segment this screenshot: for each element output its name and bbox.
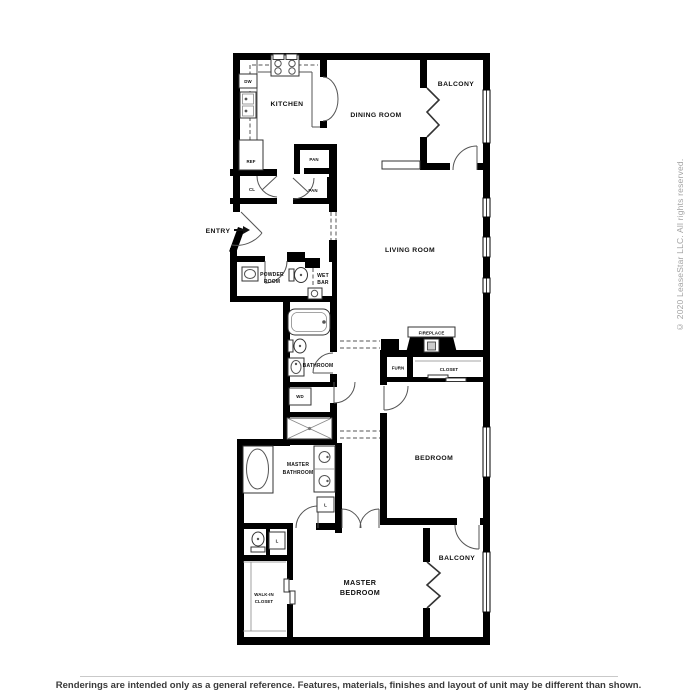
window-balcony-top <box>483 90 490 143</box>
label-powder-2: ROOM <box>264 279 280 285</box>
bathroom-sink <box>288 358 304 376</box>
label-kitchen: KITCHEN <box>270 101 303 108</box>
label-bathroom: BATHROOM <box>303 363 334 369</box>
floorplan-drawing: KITCHEN DINING ROOM BALCONY LIVING ROOM … <box>0 0 697 697</box>
label-balcony-bottom: BALCONY <box>439 555 475 562</box>
wd-door <box>334 382 355 403</box>
master-french-doors <box>342 509 379 528</box>
label-wic-1: WALK-IN <box>254 592 273 597</box>
floorplan-page: KITCHEN DINING ROOM BALCONY LIVING ROOM … <box>0 0 697 697</box>
balcony-top-door <box>453 146 477 170</box>
wc-toilet <box>251 532 265 552</box>
label-ref: REF <box>246 159 255 164</box>
plant-ledge <box>382 161 420 169</box>
cl-door <box>257 176 277 197</box>
label-wetbar-2: BAR <box>317 280 329 286</box>
label-master-bed-1: MASTER <box>344 578 377 587</box>
label-master-bath-1: MASTER <box>287 462 310 468</box>
window-bedroom <box>483 427 490 477</box>
label-pan-upper: PAN <box>309 157 318 162</box>
label-cl: CL <box>249 187 255 192</box>
kitchen-door <box>323 77 338 121</box>
window-balcony-bottom <box>483 552 490 612</box>
label-bedroom: BEDROOM <box>415 455 453 462</box>
window-living-2 <box>483 237 490 257</box>
master-bath-door <box>296 506 318 528</box>
label-wic-2: CLOSET <box>255 599 274 604</box>
toilet <box>288 339 306 353</box>
balcony-bottom-door <box>455 525 479 549</box>
window-living-3 <box>483 278 490 293</box>
bathtub <box>288 309 330 335</box>
label-master-bath-2: BATHROOM <box>283 470 314 476</box>
label-balcony-top: BALCONY <box>438 81 474 88</box>
window-living-1 <box>483 198 490 217</box>
shower <box>287 418 332 439</box>
master-vanity <box>314 446 335 492</box>
label-dw: DW <box>244 79 252 84</box>
label-living-room: LIVING ROOM <box>385 247 435 254</box>
label-furn: FURN <box>392 366 405 371</box>
powder-sink <box>242 267 258 281</box>
bedroom-door <box>384 386 408 410</box>
french-door-balcony-bottom <box>427 562 440 608</box>
footer-divider <box>80 676 618 677</box>
copyright-text: © 2020 LeaseStar LLC. All rights reserve… <box>675 12 685 332</box>
label-fireplace: FIREPLACE <box>419 331 445 336</box>
label-wetbar-1: WET <box>317 273 329 279</box>
label-master-bed-2: BEDROOM <box>340 588 380 597</box>
wet-bar-sink <box>308 288 322 299</box>
label-linen-2: L <box>276 539 279 544</box>
label-pan-lower: PAN <box>308 188 317 193</box>
disclaimer-text: Renderings are intended only as a genera… <box>0 680 697 691</box>
refrigerator <box>239 140 263 170</box>
fixture-labels: DW REF CL PAN PAN WD FURN FIREPLACE L L <box>244 79 444 544</box>
powder-toilet <box>289 268 308 283</box>
label-powder-1: POWDER <box>260 272 284 278</box>
label-wd: WD <box>296 394 304 399</box>
kitchen-sink <box>240 92 256 118</box>
label-dining-room: DINING ROOM <box>350 112 401 119</box>
label-linen-1: L <box>324 503 327 508</box>
label-closet: CLOSET <box>440 367 459 372</box>
stove <box>271 54 299 76</box>
master-tub <box>243 446 273 493</box>
french-door-balcony-top <box>427 88 439 137</box>
fixtures <box>239 54 481 631</box>
label-entry: ENTRY <box>206 228 231 235</box>
